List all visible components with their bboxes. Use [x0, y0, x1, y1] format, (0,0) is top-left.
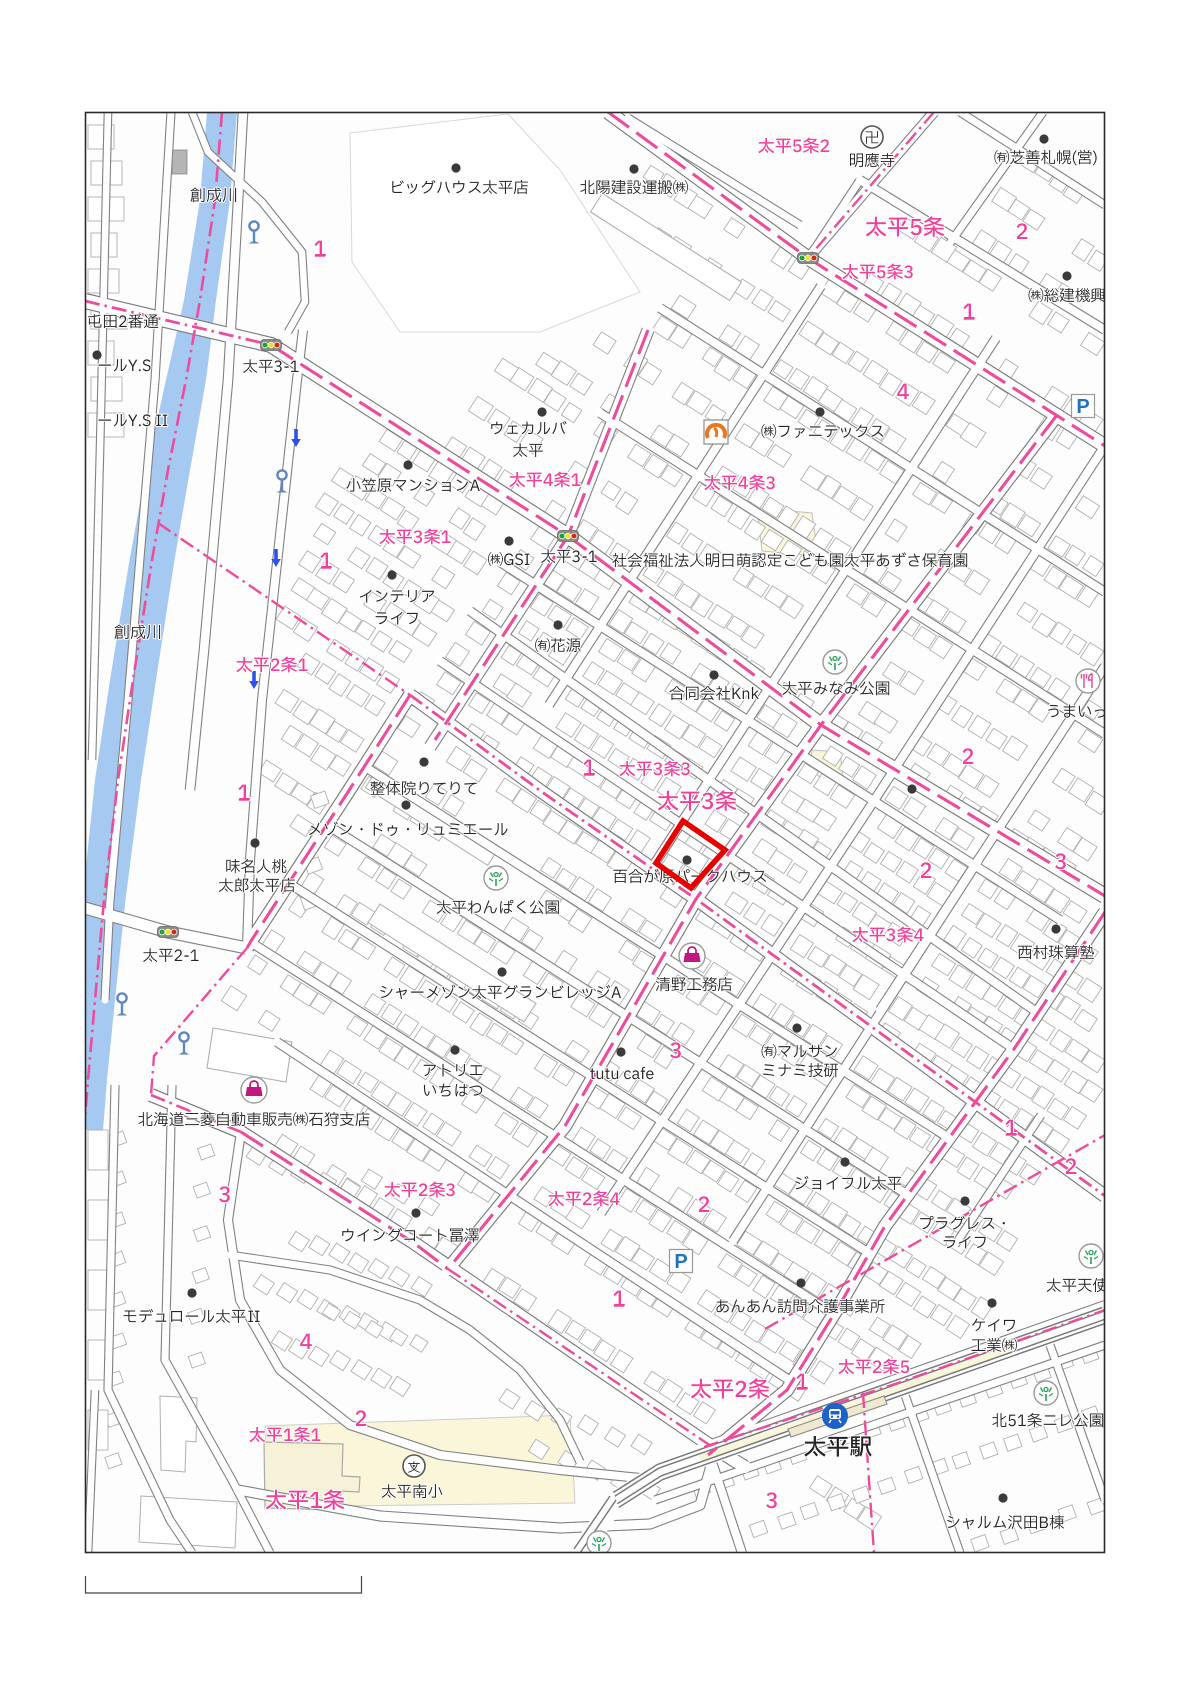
svg-text:P: P [674, 1251, 687, 1273]
svg-text:P: P [1076, 396, 1089, 418]
